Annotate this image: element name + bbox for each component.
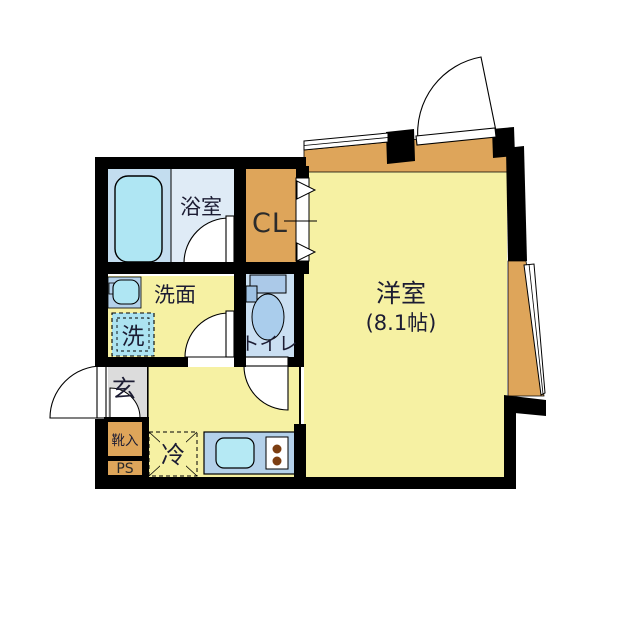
wall-right-lower: [504, 406, 516, 489]
main-room-size-label: (8.1帖): [366, 311, 437, 335]
floor-plan-svg: 浴室 CL 洗面 洗 トイレ 玄 靴入 PS 冷 洋室 (8.1帖): [0, 0, 640, 640]
toilet-door-leaf: [244, 357, 288, 366]
entrance-door-outer-arc: [50, 366, 102, 418]
wall-closet-door-bottom: [296, 260, 309, 274]
wall-pier-toilet-right: [288, 357, 304, 367]
kitchen-sink: [216, 438, 254, 468]
closet-label: CL: [252, 208, 288, 239]
wall-left-upper: [95, 157, 108, 364]
shoe-cabinet-label: 靴入: [112, 433, 139, 449]
pipe-space-label: PS: [116, 461, 133, 477]
main-room-label: 洋室: [376, 279, 426, 308]
washroom-label: 洗面: [154, 283, 196, 307]
entrance-label: 玄: [112, 375, 136, 403]
entrance-step-line: [147, 367, 149, 419]
entrance-door-leaf: [97, 364, 106, 418]
floor-plan-page: 浴室 CL 洗面 洗 トイレ 玄 靴入 PS 冷 洋室 (8.1帖): [0, 0, 640, 640]
wall-bathroom-closet: [234, 169, 246, 264]
wall-pier-toilet-left: [234, 357, 246, 367]
bathroom-label: 浴室: [180, 195, 222, 219]
toilet-label: トイレ: [240, 333, 297, 355]
boundary-kitchen-mainroom: [299, 367, 301, 424]
wall-below-bathroom: [95, 262, 309, 274]
refrigerator-label: 冷: [161, 441, 185, 469]
wall-top: [95, 157, 306, 169]
toilet-side-unit: [246, 286, 257, 302]
wall-bottom: [95, 477, 516, 489]
bathtub: [115, 176, 162, 262]
wall-kitchen-right: [294, 424, 306, 477]
balcony-door-arc: [418, 57, 496, 140]
vanity-basin: [113, 280, 139, 304]
stove-burner-icon: [273, 445, 282, 454]
washer-label: 洗: [122, 324, 145, 350]
bathroom-door-leaf: [226, 216, 234, 264]
wall-right-upper: [506, 146, 527, 261]
wall-below-washroom: [95, 357, 188, 367]
wall-top-pier: [386, 129, 415, 164]
stove-burner-icon: [273, 457, 282, 466]
washroom-door-leaf: [226, 311, 234, 357]
